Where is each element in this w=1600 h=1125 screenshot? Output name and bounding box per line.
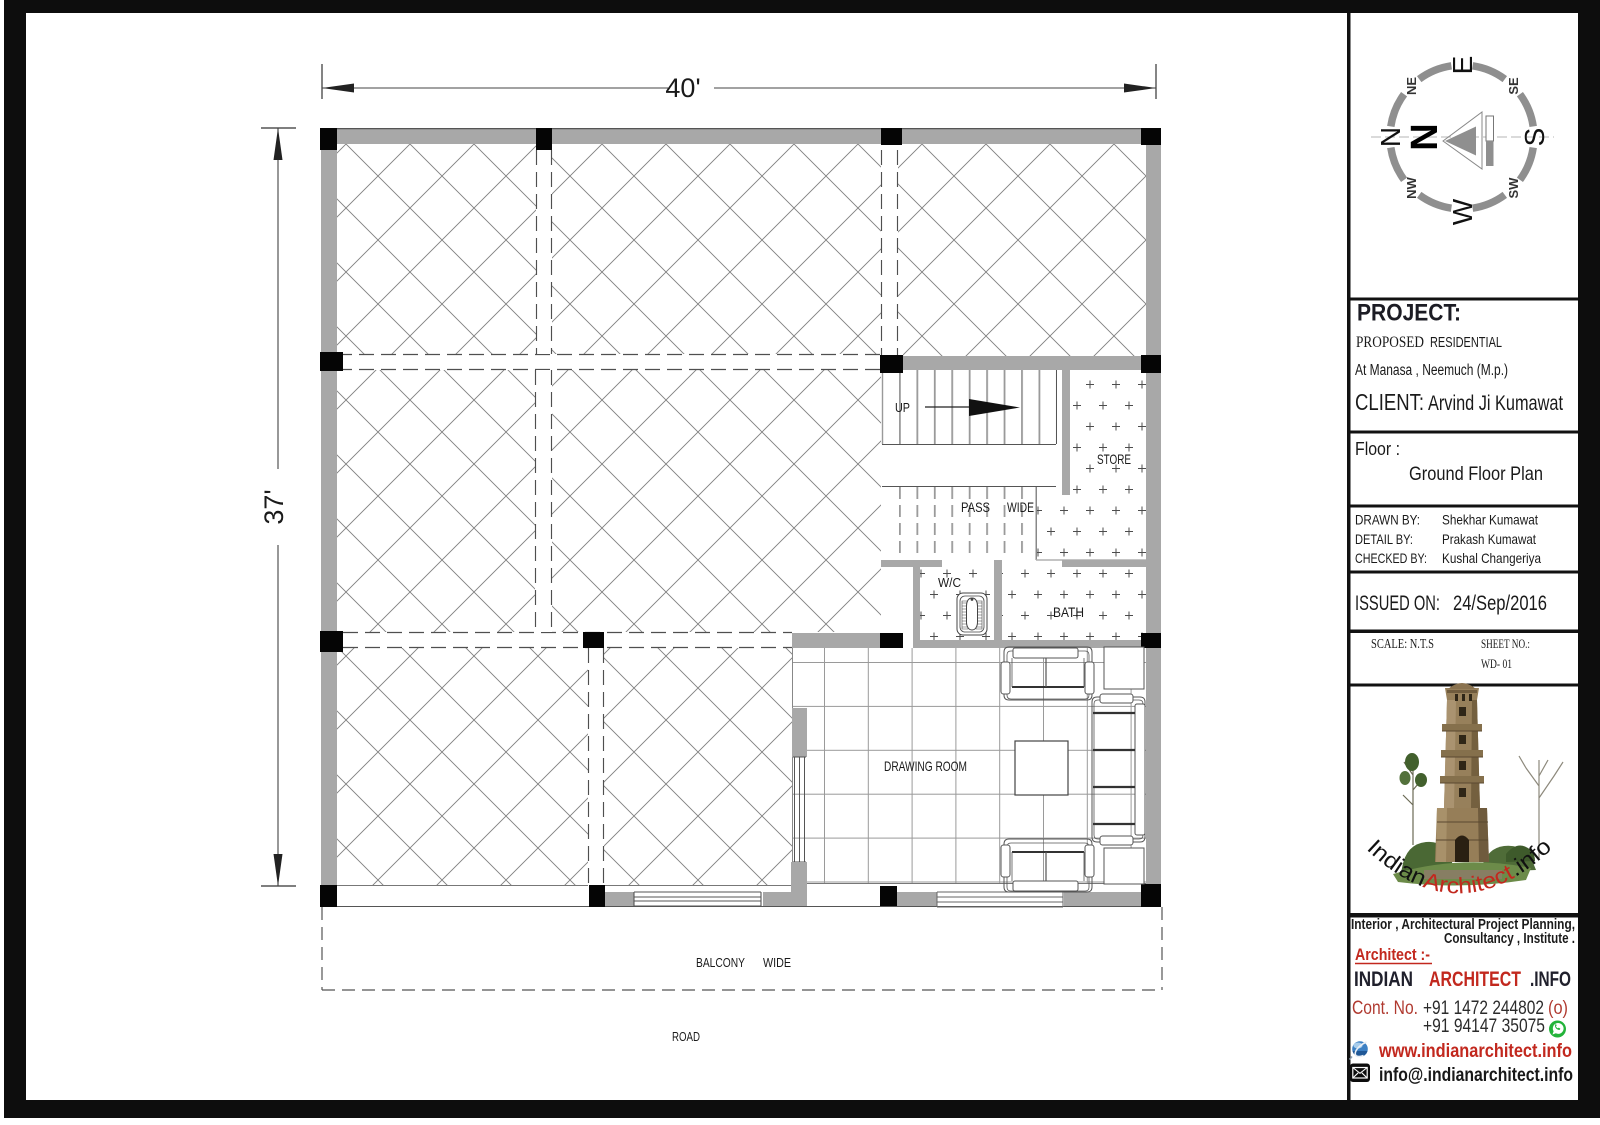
svg-text:Consultancy , Institute .: Consultancy , Institute . bbox=[1444, 931, 1575, 947]
svg-text:W: W bbox=[1447, 198, 1478, 225]
svg-text:N: N bbox=[1404, 123, 1446, 150]
svg-text:info@.indianarchitect.info: info@.indianarchitect.info bbox=[1379, 1064, 1573, 1086]
svg-text:Ground Floor Plan: Ground Floor Plan bbox=[1409, 463, 1543, 485]
svg-text:ROAD: ROAD bbox=[672, 1029, 700, 1044]
svg-text:W/C: W/C bbox=[938, 575, 961, 590]
svg-text:Shekhar Kumawat: Shekhar Kumawat bbox=[1442, 512, 1538, 528]
svg-text:SW: SW bbox=[1506, 177, 1521, 199]
svg-text:S: S bbox=[1519, 128, 1550, 147]
svg-text:PROJECT:: PROJECT: bbox=[1357, 300, 1461, 327]
svg-text:DRAWING ROOM: DRAWING ROOM bbox=[884, 758, 967, 774]
svg-text:DETAIL BY:: DETAIL BY: bbox=[1355, 531, 1413, 547]
svg-text:BATH: BATH bbox=[1053, 604, 1084, 620]
svg-text:Prakash Kumawat: Prakash Kumawat bbox=[1442, 531, 1536, 547]
svg-text:ISSUED ON:: ISSUED ON: bbox=[1355, 591, 1440, 615]
svg-text:Kushal Changeriya: Kushal Changeriya bbox=[1442, 550, 1541, 566]
svg-text:Arvind Ji Kumawat: Arvind Ji Kumawat bbox=[1428, 392, 1563, 415]
svg-text:E: E bbox=[1447, 56, 1478, 75]
svg-text:www.indianarchitect.info: www.indianarchitect.info bbox=[1378, 1041, 1572, 1062]
svg-text:PASS: PASS bbox=[961, 499, 990, 515]
svg-text:24/Sep/2016: 24/Sep/2016 bbox=[1453, 591, 1547, 615]
svg-text:At Manasa , Neemuch (M.p.): At Manasa , Neemuch (M.p.) bbox=[1355, 362, 1508, 379]
svg-text:NE: NE bbox=[1404, 77, 1419, 95]
svg-text:37': 37' bbox=[259, 489, 289, 524]
svg-text:(o): (o) bbox=[1548, 998, 1568, 1019]
svg-text:SCALE: N.T.S: SCALE: N.T.S bbox=[1371, 636, 1434, 651]
svg-text:PROPOSED: PROPOSED bbox=[1356, 334, 1424, 351]
svg-text:ARCHITECT: ARCHITECT bbox=[1429, 967, 1521, 991]
svg-text:BALCONY: BALCONY bbox=[696, 955, 745, 970]
svg-text:RESIDENTIAL: RESIDENTIAL bbox=[1430, 334, 1502, 351]
svg-text:WIDE: WIDE bbox=[763, 955, 791, 970]
svg-text:SHEET NO.:: SHEET NO.: bbox=[1481, 636, 1530, 651]
svg-text:CLIENT:: CLIENT: bbox=[1355, 389, 1424, 415]
svg-text:WD- 01: WD- 01 bbox=[1481, 656, 1512, 671]
svg-text:STORE: STORE bbox=[1097, 451, 1131, 467]
svg-text:NW: NW bbox=[1404, 176, 1419, 198]
svg-text:.INFO: .INFO bbox=[1530, 967, 1571, 991]
svg-text:WIDE: WIDE bbox=[1007, 499, 1034, 515]
svg-text:CHECKED BY:: CHECKED BY: bbox=[1355, 550, 1427, 566]
svg-text:SE: SE bbox=[1506, 77, 1521, 95]
svg-text:Floor :: Floor : bbox=[1355, 439, 1400, 459]
svg-text:+91 94147 35075: +91 94147 35075 bbox=[1423, 1016, 1545, 1037]
svg-text:Cont. No.: Cont. No. bbox=[1352, 998, 1418, 1019]
svg-text:40': 40' bbox=[665, 73, 700, 103]
svg-text:INDIAN: INDIAN bbox=[1354, 967, 1413, 991]
svg-text:DRAWN BY:: DRAWN BY: bbox=[1355, 512, 1420, 528]
svg-text:N: N bbox=[1375, 127, 1406, 147]
svg-text:UP: UP bbox=[895, 400, 910, 415]
svg-text:Architect :-: Architect :- bbox=[1355, 946, 1430, 964]
